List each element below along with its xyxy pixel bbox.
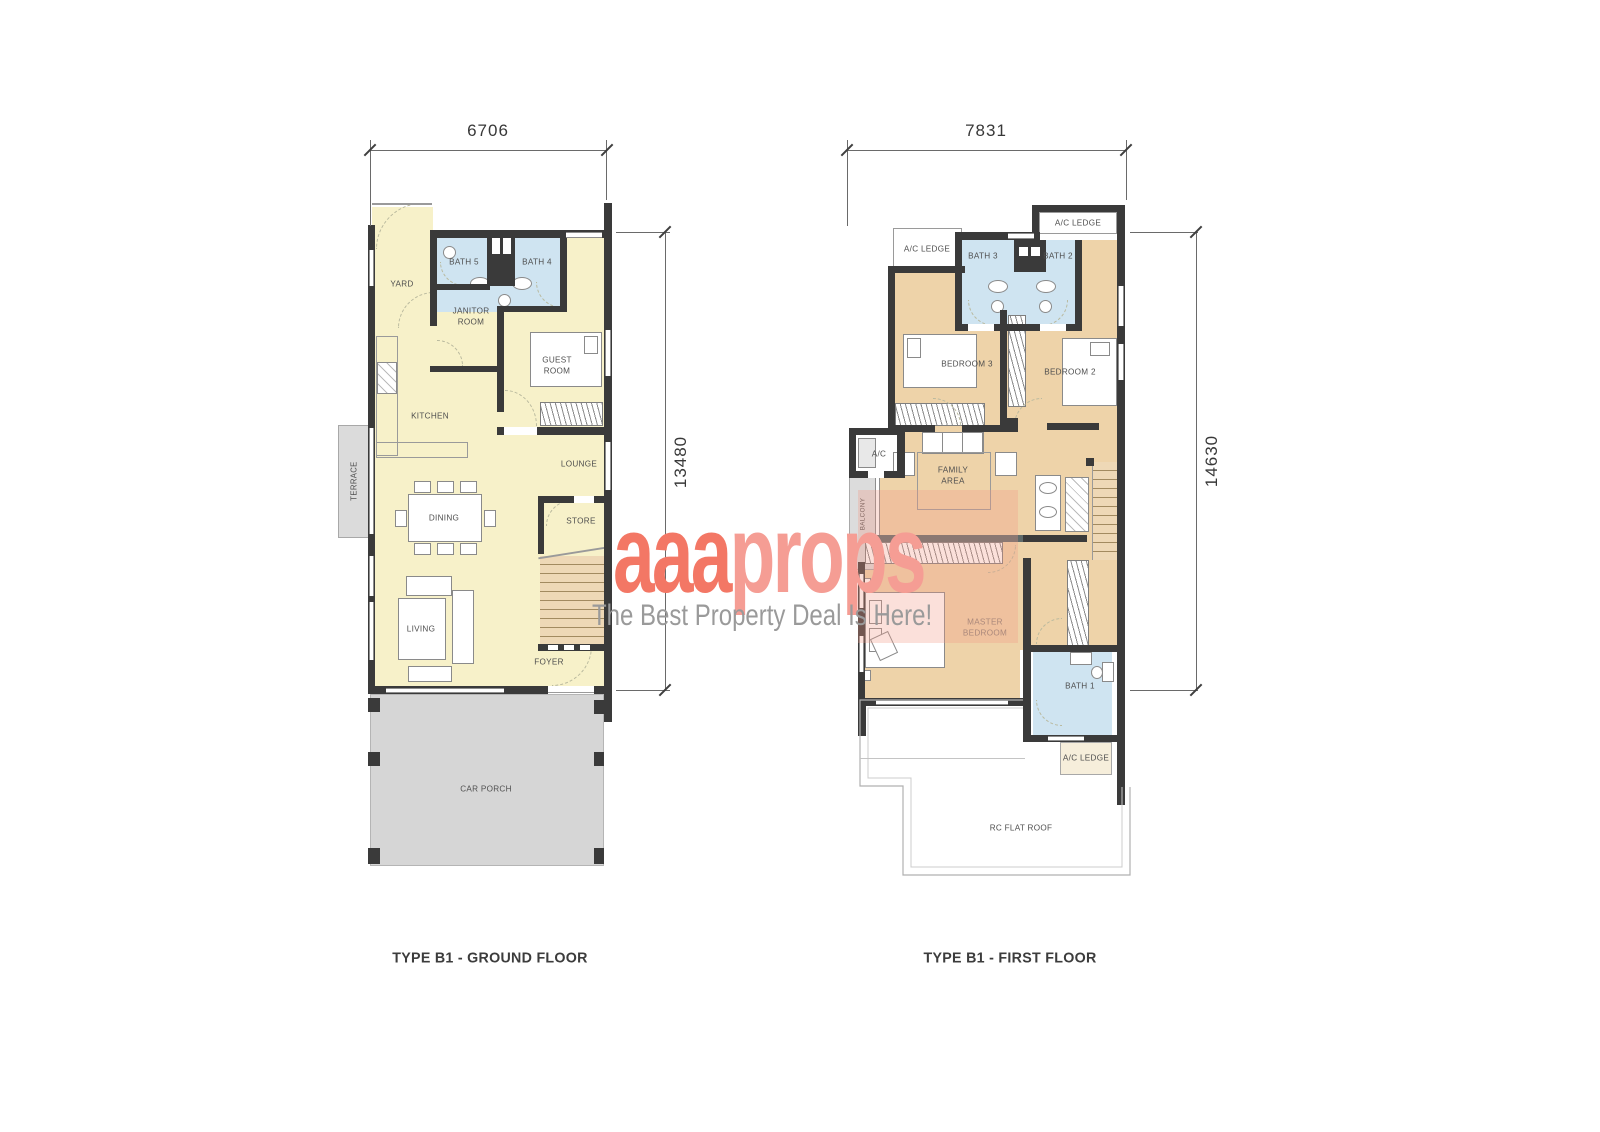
- wall: [955, 240, 962, 330]
- dimension-line: [847, 150, 1127, 151]
- pillow: [907, 338, 921, 358]
- dimension-height-first: 14630: [1202, 435, 1222, 487]
- wall: [962, 425, 1000, 432]
- rc-flat-roof-outline: [855, 695, 1140, 880]
- room-label-ac-ledge-left: A/C LEDGE: [904, 243, 950, 254]
- window: [1118, 344, 1124, 380]
- first-floor-plan: A/C LEDGE A/C LEDGE BATH 3 BATH 2 BEDROO…: [0, 0, 1600, 1132]
- window: [875, 478, 880, 570]
- wall: [1023, 558, 1031, 653]
- pillow: [869, 600, 882, 624]
- floor-plan-sheet: YARD BATH 5 BATH 4 JANITOR ROOM GUEST RO…: [0, 0, 1600, 1132]
- room-label-family: FAMILY AREA: [938, 465, 968, 488]
- sofa: [922, 432, 984, 454]
- wall: [1031, 645, 1117, 652]
- plan-shape: [1031, 247, 1040, 256]
- wall: [1000, 310, 1007, 420]
- wall: [1023, 535, 1087, 542]
- room-label-bedroom3: BEDROOM 3: [941, 358, 993, 369]
- basin: [1039, 506, 1057, 518]
- dimension-line: [1196, 232, 1197, 691]
- toilet-tank: [1102, 662, 1114, 682]
- plan-shape: [860, 758, 1025, 759]
- plan-shape: [1019, 247, 1028, 256]
- service-shaft: [1014, 240, 1046, 272]
- pillow: [1090, 342, 1110, 356]
- window: [859, 636, 864, 672]
- room-label-bedroom2: BEDROOM 2: [1044, 366, 1096, 377]
- wall: [1032, 205, 1117, 212]
- room-label-ac: A/C: [872, 448, 886, 459]
- room-label-balcony: BALCONY: [860, 498, 867, 531]
- plan-shape: [1130, 232, 1198, 233]
- window: [1008, 233, 1034, 239]
- wardrobe: [865, 542, 1003, 564]
- wall: [1047, 423, 1099, 430]
- room-label-ac-ledge-top: A/C LEDGE: [1055, 217, 1101, 228]
- window: [859, 574, 864, 608]
- stair-newel: [1086, 458, 1094, 466]
- toilet: [1091, 666, 1103, 679]
- plan-shape: [868, 471, 884, 478]
- room-label-bath1: BATH 1: [1065, 680, 1095, 691]
- first-floor-title: TYPE B1 - FIRST FLOOR: [923, 950, 1096, 967]
- plan-shape: [968, 324, 994, 331]
- basin: [1070, 652, 1092, 665]
- basin: [1036, 280, 1056, 293]
- wall: [849, 428, 904, 435]
- first-staircase: [1093, 462, 1117, 560]
- dimension-width-first: 7831: [965, 121, 1007, 141]
- armchair: [995, 452, 1017, 476]
- wall: [888, 266, 965, 273]
- wall: [1000, 418, 1018, 432]
- wardrobe: [1067, 560, 1089, 646]
- plan-shape: [1092, 462, 1093, 560]
- window: [1118, 286, 1124, 326]
- wall: [1075, 240, 1082, 330]
- room-label-bath3: BATH 3: [968, 250, 998, 261]
- room-label-rc-flat-roof: RC FLAT ROOF: [990, 822, 1053, 833]
- plan-shape: [847, 140, 848, 226]
- plan-shape: [1130, 690, 1198, 691]
- basin: [988, 280, 1008, 293]
- cabinet: [1065, 477, 1089, 532]
- room-label-ac-ledge-bottom: A/C LEDGE: [1063, 752, 1109, 763]
- room-label-bath2: BATH 2: [1043, 250, 1073, 261]
- basin: [1039, 482, 1057, 494]
- wall: [888, 266, 895, 432]
- room-label-master: MASTER BEDROOM: [963, 617, 1007, 640]
- plan-shape: [1040, 324, 1066, 331]
- wall: [1032, 205, 1039, 233]
- wardrobe-back: [863, 535, 1023, 542]
